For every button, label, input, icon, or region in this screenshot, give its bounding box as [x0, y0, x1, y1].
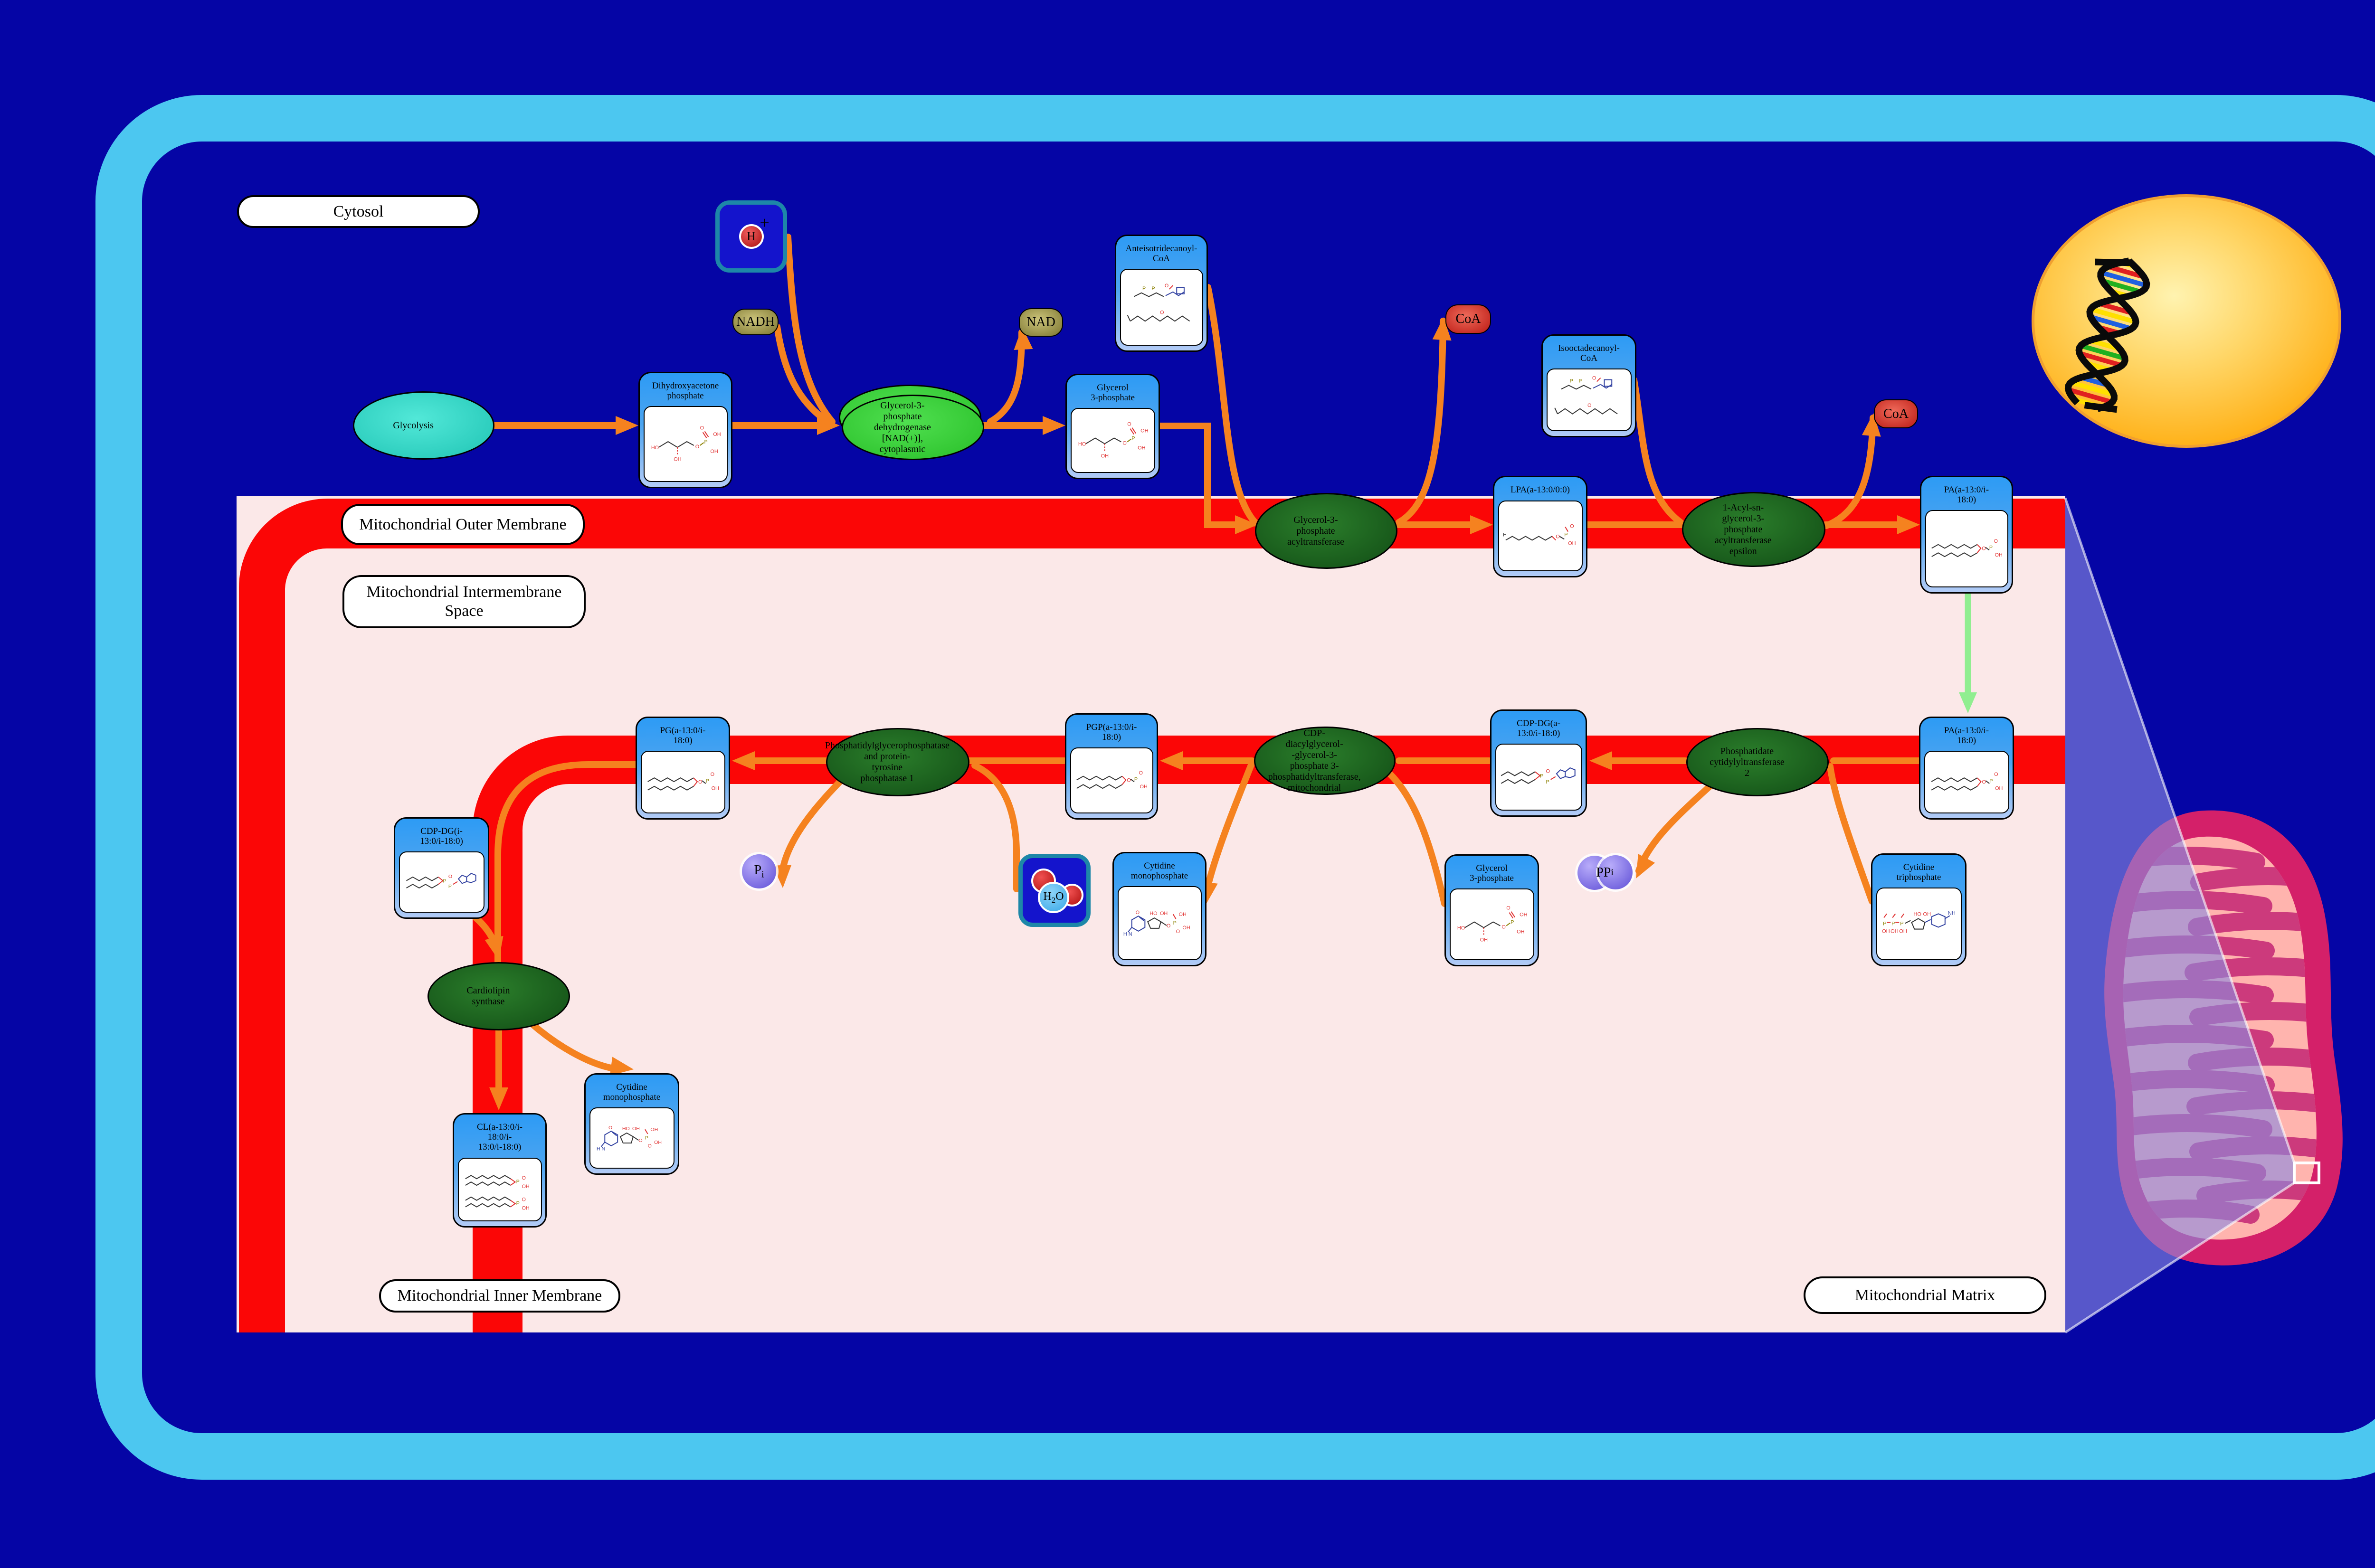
svg-text:OH: OH [1568, 540, 1576, 546]
svg-text:P: P [1131, 436, 1135, 442]
svg-text:O: O [1139, 770, 1143, 776]
svg-text:OH: OH [1520, 912, 1527, 918]
svg-text:P: P [1151, 286, 1155, 292]
svg-text:P: P [1891, 921, 1895, 927]
svg-text:O: O [1994, 538, 1998, 544]
svg-text:O: O [1136, 910, 1140, 916]
svg-text:HO: HO [622, 1126, 630, 1132]
svg-text:OH: OH [713, 432, 721, 437]
svg-text:O: O [1587, 403, 1591, 408]
svg-text:H N: H N [597, 1146, 605, 1152]
svg-text:OH: OH [710, 449, 718, 454]
svg-text:O: O [1982, 546, 1985, 551]
svg-text:P: P [1579, 378, 1582, 384]
svg-text:P: P [1564, 532, 1567, 538]
svg-text:OH: OH [1882, 929, 1890, 935]
svg-text:OH: OH [650, 1127, 658, 1133]
svg-text:O: O [1506, 906, 1510, 911]
svg-text:OH: OH [522, 1206, 529, 1211]
svg-text:H: H [1503, 532, 1507, 538]
svg-text:OH: OH [522, 1184, 529, 1190]
svg-text:O: O [711, 772, 714, 777]
svg-text:P: P [1883, 921, 1886, 927]
svg-text:O: O [1167, 923, 1170, 929]
svg-text:O: O [698, 779, 702, 785]
svg-text:O: O [522, 1197, 525, 1203]
svg-text:OH: OH [1923, 911, 1931, 917]
svg-text:O: O [1160, 310, 1164, 316]
svg-text:P: P [443, 878, 446, 884]
svg-text:O: O [1982, 779, 1986, 785]
svg-text:OH: OH [1101, 453, 1109, 459]
svg-text:OH: OH [1140, 784, 1148, 790]
svg-text:O: O [1570, 524, 1574, 529]
svg-text:P: P [1134, 776, 1138, 782]
svg-text:OH: OH [1138, 445, 1145, 451]
svg-text:O: O [1546, 768, 1550, 774]
svg-text:OH: OH [632, 1126, 640, 1132]
svg-text:OH: OH [1995, 552, 2003, 558]
svg-text:P: P [704, 439, 708, 445]
svg-text:O: O [1176, 929, 1180, 935]
svg-text:O: O [1556, 534, 1560, 539]
svg-text:O: O [448, 874, 452, 879]
svg-text:O: O [638, 1138, 642, 1143]
svg-text:OH: OH [1179, 912, 1187, 917]
svg-text:O: O [1127, 422, 1131, 427]
svg-text:OH: OH [1517, 929, 1524, 935]
svg-text:P: P [1510, 920, 1514, 926]
svg-text:O: O [522, 1175, 525, 1181]
svg-text:HO: HO [1913, 911, 1921, 917]
svg-text:HO: HO [651, 445, 659, 451]
svg-text:P: P [448, 884, 452, 889]
svg-text:OH: OH [1160, 911, 1168, 916]
svg-text:OH: OH [1899, 929, 1907, 935]
svg-text:NH: NH [1948, 910, 1956, 916]
svg-text:HO: HO [1149, 911, 1157, 916]
svg-text:P: P [1173, 920, 1177, 926]
svg-text:O: O [648, 1143, 652, 1149]
svg-text:OH: OH [1890, 929, 1899, 935]
svg-text:P: P [516, 1201, 520, 1207]
svg-text:OH: OH [712, 786, 719, 792]
svg-text:HO: HO [1457, 925, 1465, 931]
svg-text:O: O [1127, 777, 1130, 783]
svg-text:OH: OH [1995, 786, 2003, 792]
svg-text:OH: OH [674, 457, 681, 463]
svg-text:P: P [706, 778, 709, 784]
svg-text:P: P [1989, 778, 1993, 784]
svg-text:O: O [700, 425, 704, 431]
svg-text:O: O [1165, 283, 1168, 289]
svg-text:H N: H N [1123, 932, 1132, 937]
svg-text:OH: OH [1140, 428, 1148, 434]
svg-text:P: P [1570, 378, 1573, 384]
svg-text:P: P [1989, 545, 1993, 550]
svg-text:P: P [645, 1135, 648, 1141]
svg-text:P: P [1546, 779, 1549, 785]
svg-text:O: O [695, 444, 699, 450]
svg-text:OH: OH [654, 1140, 662, 1145]
svg-text:P: P [1540, 774, 1544, 779]
svg-text:O: O [1994, 772, 1998, 777]
svg-text:O: O [1501, 924, 1506, 930]
svg-text:O: O [1122, 440, 1127, 446]
svg-text:OH: OH [1182, 925, 1190, 931]
svg-text:P: P [1900, 921, 1903, 927]
svg-text:O: O [1592, 376, 1596, 381]
svg-text:P: P [516, 1179, 520, 1185]
svg-text:OH: OH [1480, 937, 1488, 943]
svg-text:O: O [608, 1125, 612, 1131]
svg-text:P: P [1142, 286, 1146, 292]
svg-text:HO: HO [1078, 441, 1086, 447]
